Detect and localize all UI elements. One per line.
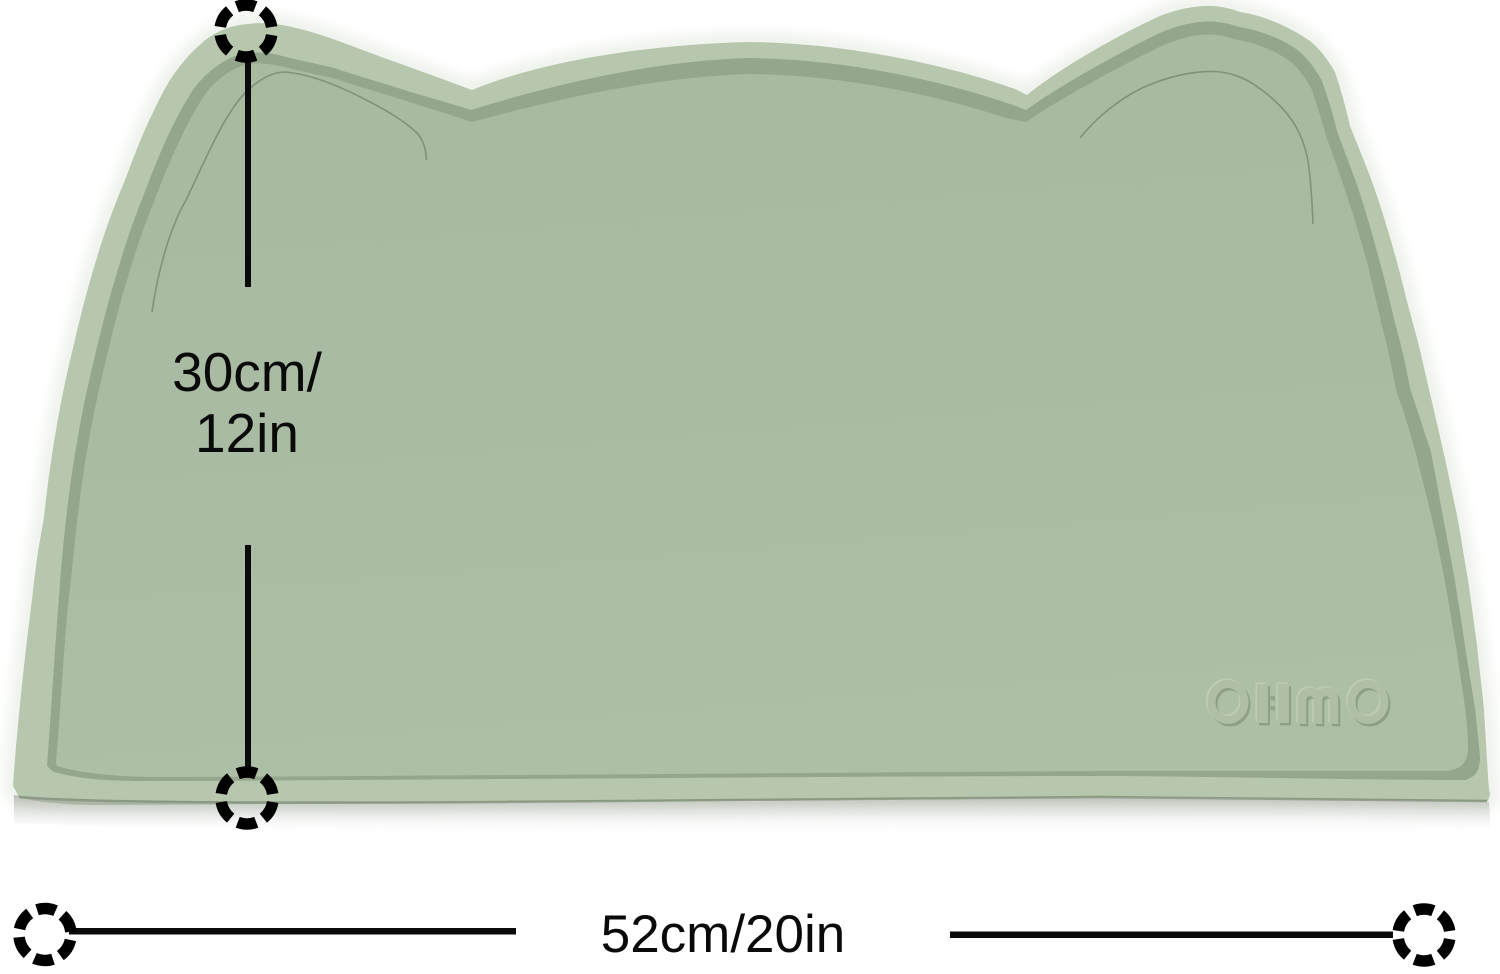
svg-text:52cm/20in: 52cm/20in [601, 905, 846, 964]
svg-text:30cm/: 30cm/ [172, 341, 322, 403]
svg-text:12in: 12in [195, 402, 299, 464]
